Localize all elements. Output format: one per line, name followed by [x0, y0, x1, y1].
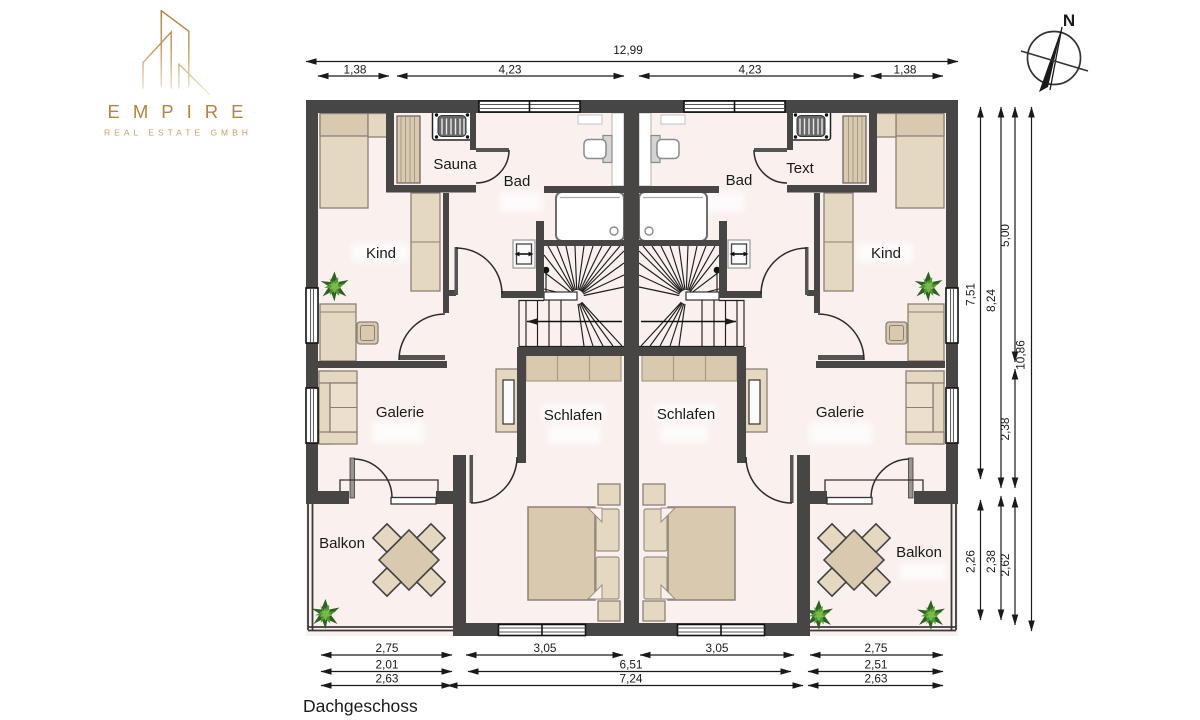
svg-text:Bad: Bad [504, 173, 531, 190]
svg-text:EMPIRE: EMPIRE [108, 101, 257, 122]
svg-text:REAL ESTATE GMBH: REAL ESTATE GMBH [104, 128, 252, 138]
svg-text:Text: Text [786, 160, 814, 177]
svg-text:2,51: 2,51 [865, 658, 888, 672]
svg-text:8,24: 8,24 [984, 289, 998, 312]
svg-text:1,38: 1,38 [344, 63, 367, 77]
svg-text:Galerie: Galerie [816, 404, 864, 421]
svg-text:2,62: 2,62 [998, 554, 1012, 577]
svg-text:Sauna: Sauna [433, 156, 477, 173]
svg-text:10,86: 10,86 [1014, 340, 1028, 370]
svg-text:Schlafen: Schlafen [657, 406, 715, 423]
svg-text:7,24: 7,24 [620, 672, 643, 686]
svg-text:Kind: Kind [366, 245, 396, 262]
svg-text:2,01: 2,01 [376, 658, 399, 672]
svg-text:2,38: 2,38 [984, 550, 998, 573]
svg-text:6,51: 6,51 [620, 658, 643, 672]
svg-text:Kind: Kind [871, 245, 901, 262]
svg-text:Bad: Bad [726, 172, 753, 189]
svg-text:Schlafen: Schlafen [544, 407, 602, 424]
svg-text:12,99: 12,99 [613, 43, 643, 57]
svg-text:2,75: 2,75 [865, 641, 888, 655]
svg-text:Galerie: Galerie [376, 404, 424, 421]
svg-text:Dachgeschoss: Dachgeschoss [303, 696, 418, 716]
svg-text:2,63: 2,63 [865, 672, 888, 686]
svg-text:2,75: 2,75 [376, 641, 399, 655]
svg-text:2,63: 2,63 [376, 672, 399, 686]
svg-text:1,38: 1,38 [894, 63, 917, 77]
svg-text:7,51: 7,51 [964, 283, 978, 306]
svg-text:2,26: 2,26 [964, 550, 978, 573]
svg-text:2,38: 2,38 [998, 417, 1012, 440]
svg-text:3,05: 3,05 [706, 641, 729, 655]
svg-text:Balkon: Balkon [319, 535, 365, 552]
svg-text:4,23: 4,23 [499, 63, 522, 77]
svg-text:4,23: 4,23 [739, 63, 762, 77]
svg-text:N: N [1063, 11, 1075, 30]
svg-text:5,00: 5,00 [998, 224, 1012, 247]
svg-text:Balkon: Balkon [896, 544, 942, 561]
svg-text:3,05: 3,05 [534, 641, 557, 655]
